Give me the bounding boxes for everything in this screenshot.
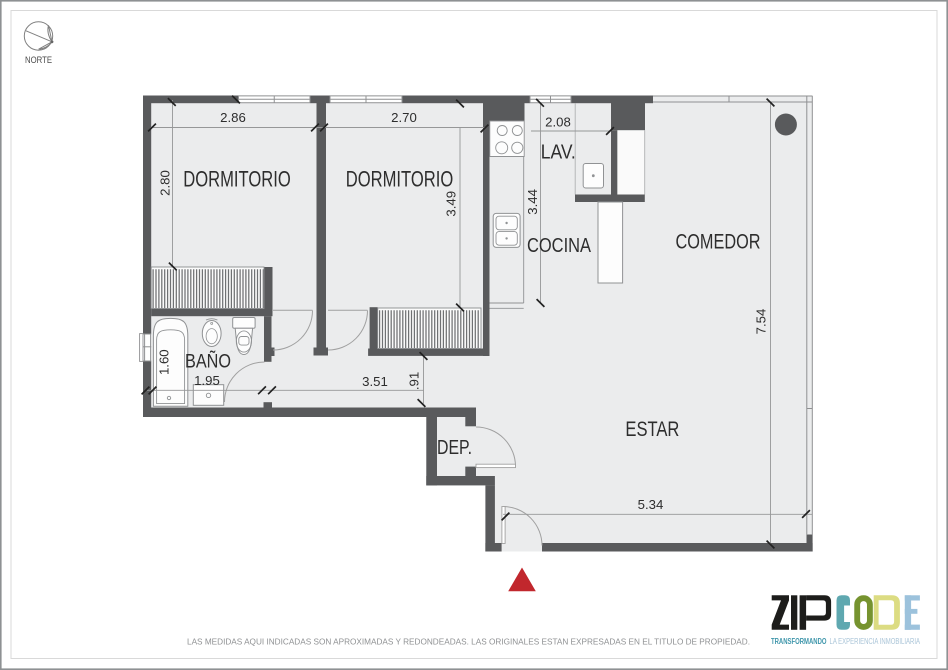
svg-text:LA EXPERIENCIA INMOBILIARIA: LA EXPERIENCIA INMOBILIARIA <box>830 636 921 646</box>
svg-text:5.34: 5.34 <box>638 497 664 512</box>
svg-text:DORMITORIO: DORMITORIO <box>183 167 291 192</box>
svg-text:2.70: 2.70 <box>391 110 417 125</box>
svg-text:2.08: 2.08 <box>545 115 571 130</box>
svg-text:TRANSFORMANDO: TRANSFORMANDO <box>771 636 827 646</box>
svg-text:COCINA: COCINA <box>527 234 591 257</box>
svg-text:3.49: 3.49 <box>444 191 459 217</box>
svg-text:1.60: 1.60 <box>157 349 172 375</box>
svg-text:BAÑO: BAÑO <box>185 351 231 373</box>
svg-text:2.80: 2.80 <box>158 170 173 196</box>
svg-text:.91: .91 <box>407 372 422 390</box>
svg-text:2.86: 2.86 <box>220 110 246 125</box>
svg-text:DEP.: DEP. <box>437 436 472 459</box>
svg-text:DORMITORIO: DORMITORIO <box>346 167 454 192</box>
svg-text:COMEDOR: COMEDOR <box>676 231 761 254</box>
svg-text:3.44: 3.44 <box>525 189 540 215</box>
svg-text:LAS MEDIDAS AQUI INDICADAS SON: LAS MEDIDAS AQUI INDICADAS SON APROXIMAD… <box>187 638 750 647</box>
svg-text:3.51: 3.51 <box>362 374 388 389</box>
svg-text:NORTE: NORTE <box>25 55 52 65</box>
svg-text:LAV.: LAV. <box>541 141 576 164</box>
svg-text:7.54: 7.54 <box>754 309 769 335</box>
svg-text:1.95: 1.95 <box>194 373 220 388</box>
svg-text:ESTAR: ESTAR <box>625 418 679 441</box>
